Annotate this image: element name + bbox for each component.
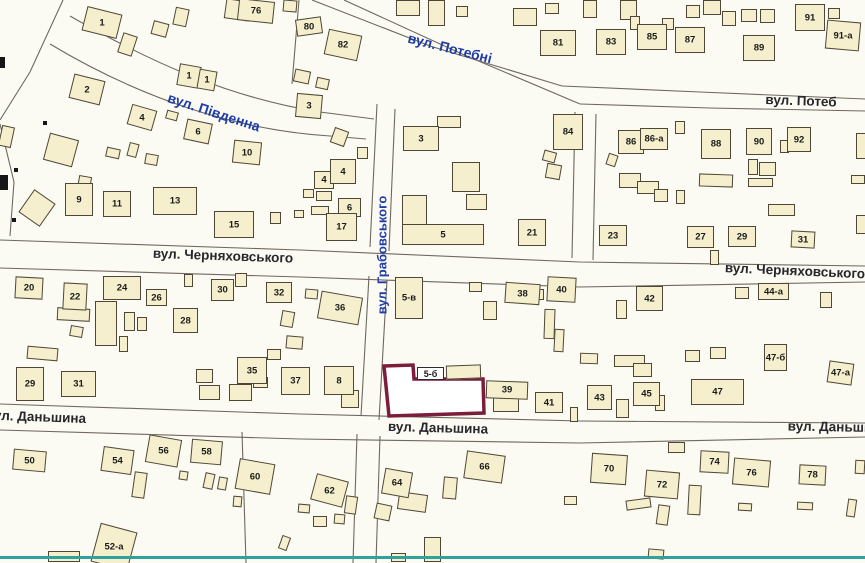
highlighted-parcel-layer xyxy=(0,0,865,563)
street-label: вул. Даньши xyxy=(788,420,865,435)
street-label: вул. Потеб xyxy=(765,93,837,109)
map-bottom-edge-line xyxy=(0,556,865,559)
street-label: вул. Грабовського xyxy=(376,196,389,315)
highlighted-parcel-label: 5-б xyxy=(417,367,444,380)
map-canvas[interactable]: 176808281838587899191-а21134610911131544… xyxy=(0,0,865,563)
street-label: вул. Даньшина xyxy=(388,420,488,436)
building xyxy=(446,364,481,379)
street-label: вул. Даньшина xyxy=(0,409,86,426)
